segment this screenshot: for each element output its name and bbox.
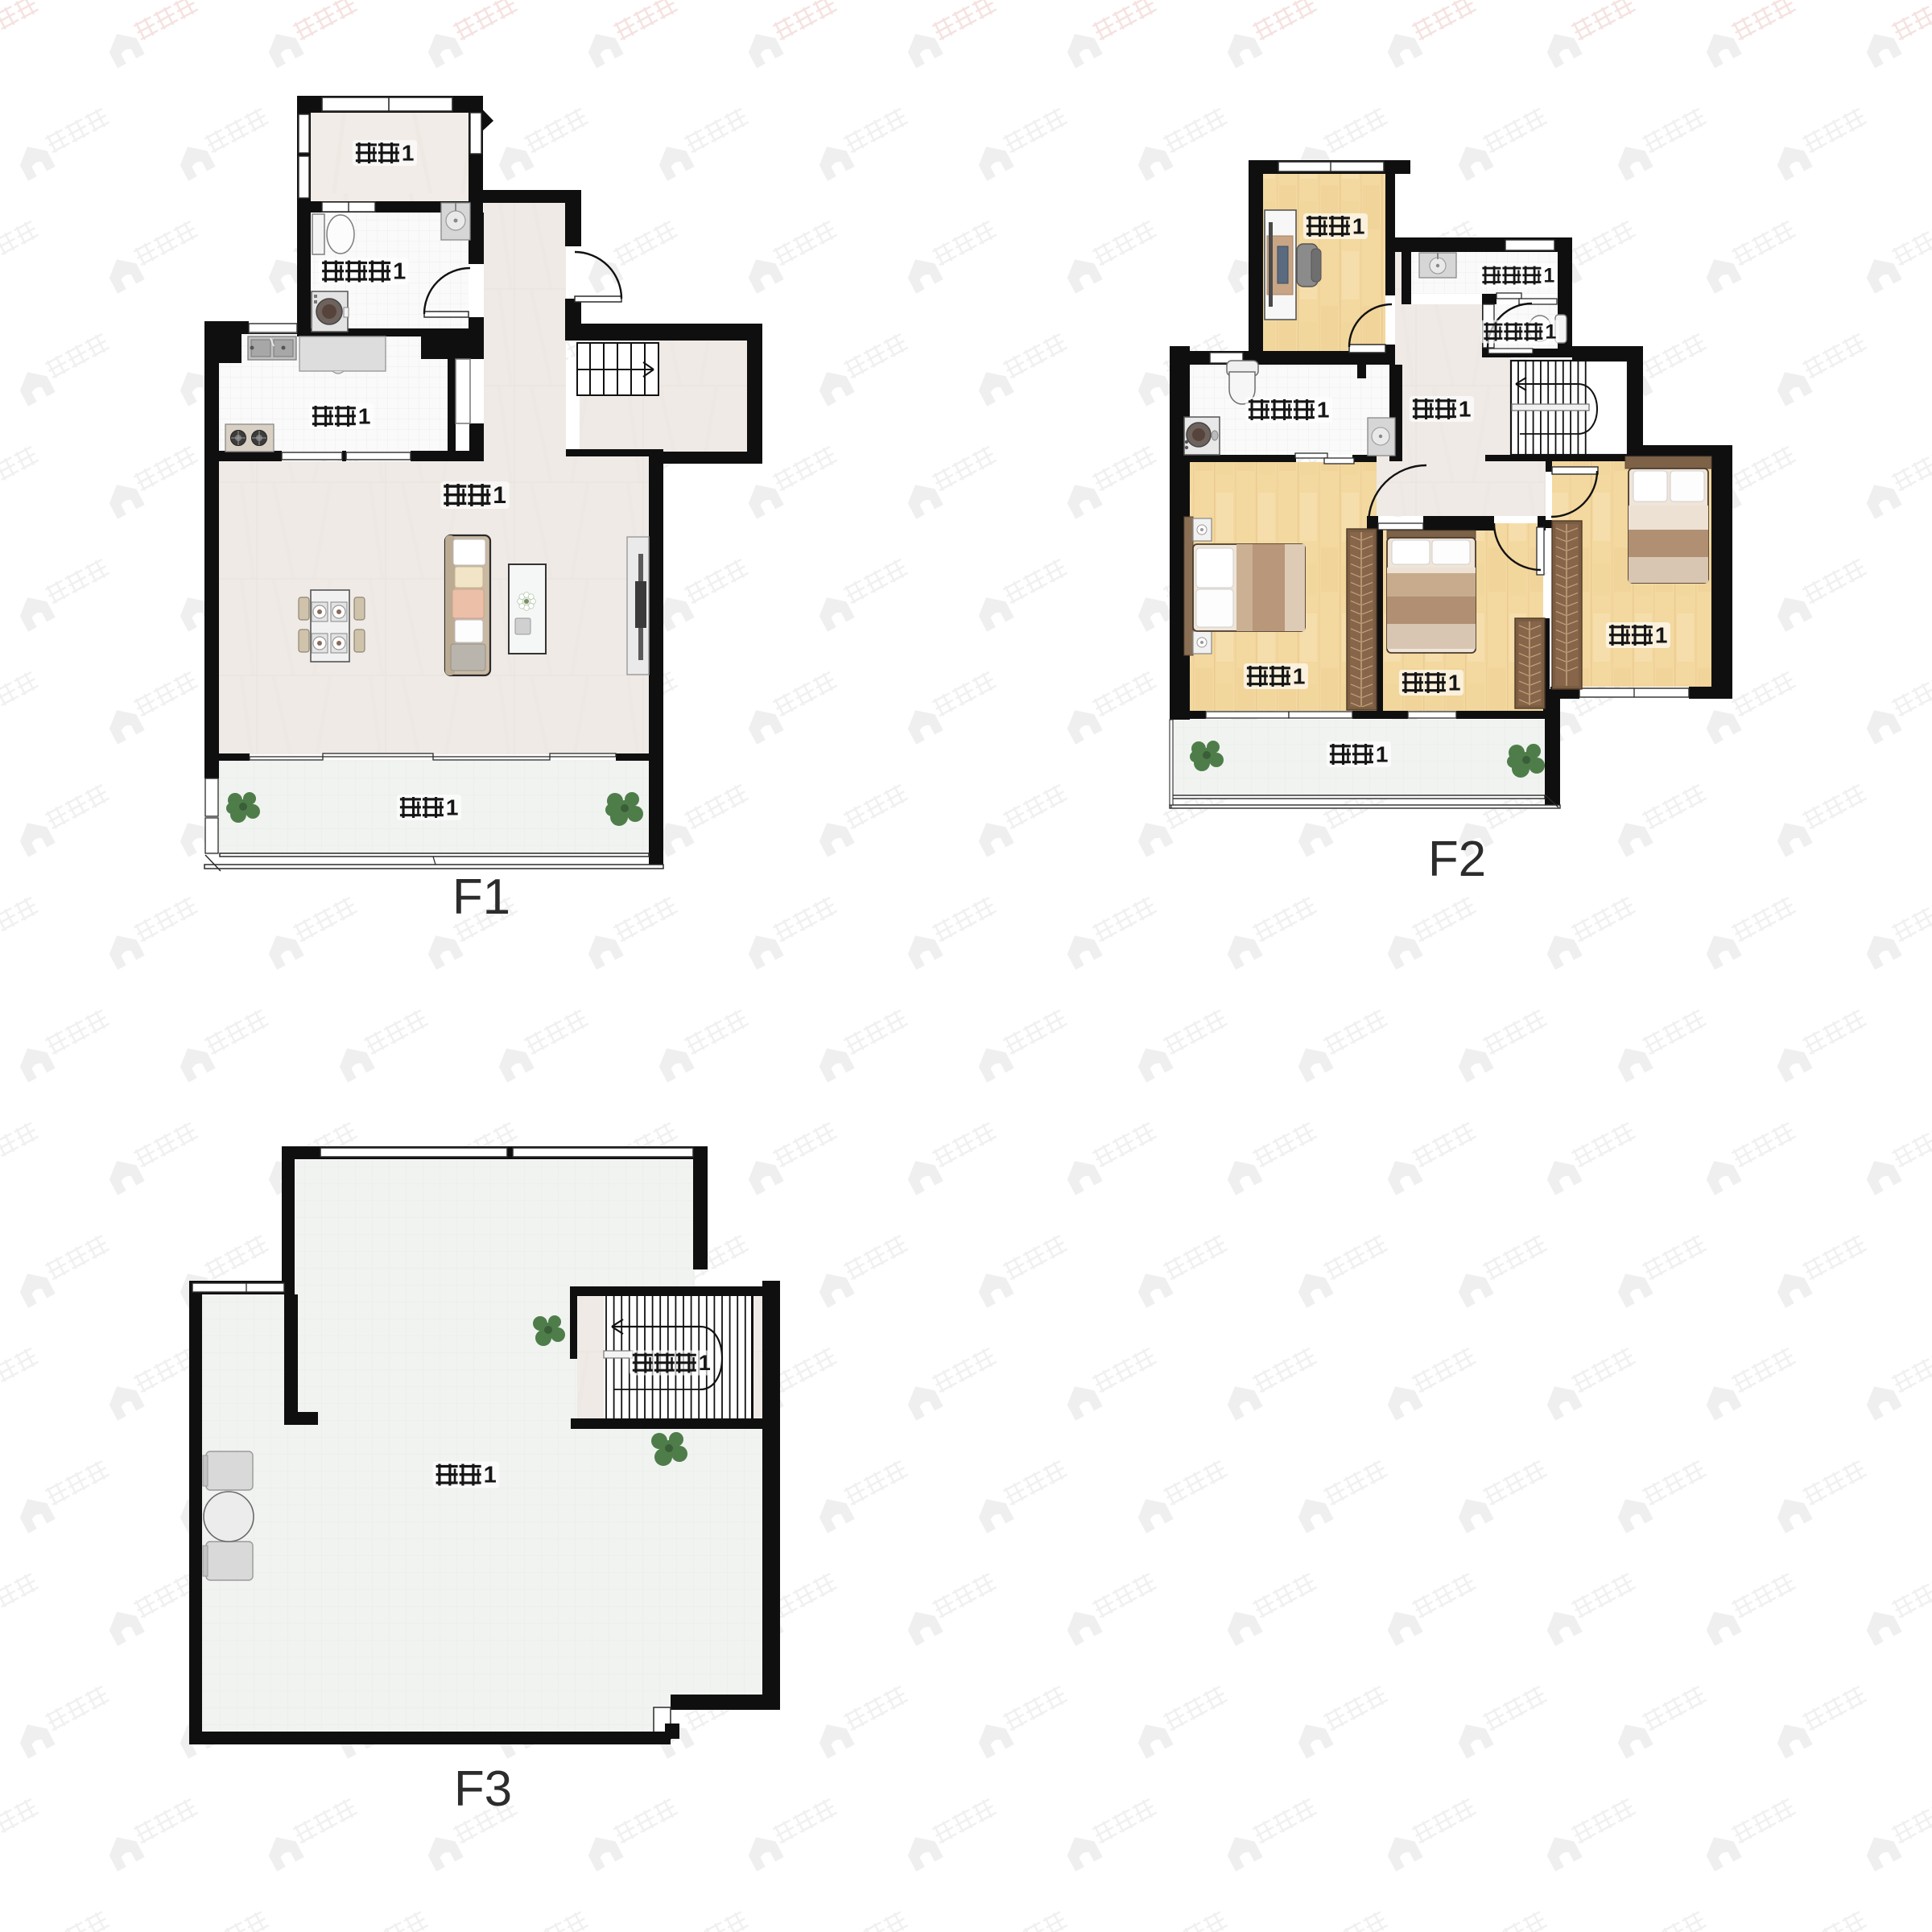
svg-text:1: 1	[484, 1463, 497, 1488]
svg-text:F1: F1	[452, 869, 510, 925]
svg-text:F2: F2	[1428, 832, 1486, 887]
svg-text:1: 1	[699, 1351, 711, 1375]
svg-text:1: 1	[393, 259, 406, 285]
svg-text:1: 1	[1293, 663, 1306, 688]
svg-text:1: 1	[1543, 264, 1554, 287]
svg-text:1: 1	[1459, 396, 1472, 421]
svg-text:1: 1	[1352, 213, 1365, 238]
svg-text:1: 1	[446, 795, 459, 819]
svg-text:1: 1	[1545, 320, 1556, 343]
svg-text:1: 1	[358, 403, 371, 428]
svg-text:1: 1	[1655, 622, 1668, 647]
svg-text:1: 1	[1317, 397, 1330, 422]
svg-text:1: 1	[402, 140, 415, 165]
svg-text:1: 1	[1448, 670, 1461, 695]
svg-text:F3: F3	[454, 1761, 512, 1817]
svg-text:1: 1	[1376, 741, 1389, 766]
svg-text:1: 1	[493, 482, 506, 509]
